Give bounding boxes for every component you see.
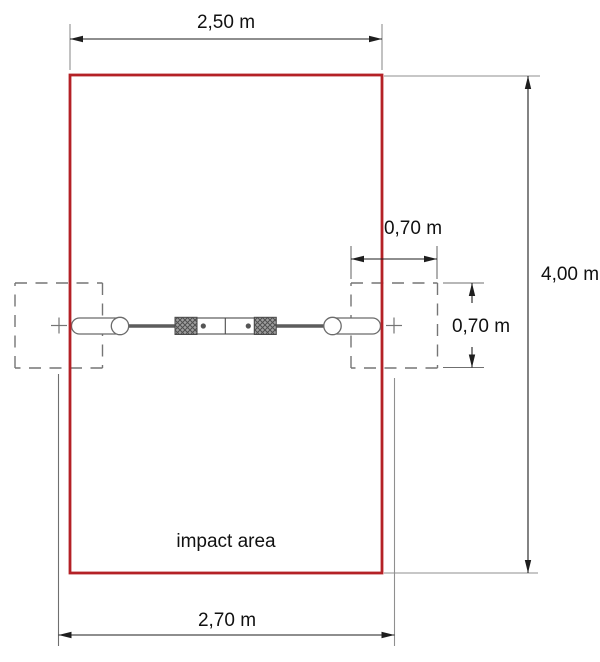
arrow-right-icon [424,256,437,262]
left-center-cross-icon [51,318,67,334]
arrow-right-icon [369,36,382,42]
right-center-cross-icon [386,318,402,334]
dimension-top-width: 2,50 m [70,12,382,70]
arrow-down-icon [525,560,531,573]
dimension-clearance-height: 0,70 m [443,283,510,368]
dim-label-clearance-height: 0,70 m [452,316,510,337]
right-handle [324,317,341,334]
arrow-left-icon [59,632,72,638]
right-spring-block [254,317,276,334]
dim-label-bottom-width: 2,70 m [198,610,256,631]
arrow-right-icon [382,632,395,638]
dimension-clearance-width: 0,70 m [351,218,442,279]
dimension-bottom-width: 2,70 m [59,374,395,646]
arrow-up-icon [469,283,475,296]
dim-label-overall-height: 4,00 m [541,264,599,285]
arrow-left-icon [351,256,364,262]
arrow-up-icon [525,76,531,89]
seesaw-impact-area-diagram: 2,50 m 4,00 m 0,70 m 0 [0,0,600,662]
arrow-left-icon [70,36,83,42]
arrow-down-icon [469,355,475,368]
left-pivot-bolt [201,323,206,328]
seesaw-equipment [72,317,381,334]
right-pivot-bolt [246,323,251,328]
dim-label-top-width: 2,50 m [197,12,255,33]
impact-area-label: impact area [176,531,276,552]
plan-view-drawing: 2,50 m 4,00 m 0,70 m 0 [0,0,600,662]
left-spring-block [175,317,197,334]
left-handle [111,317,128,334]
dim-label-clearance-width: 0,70 m [384,218,442,239]
